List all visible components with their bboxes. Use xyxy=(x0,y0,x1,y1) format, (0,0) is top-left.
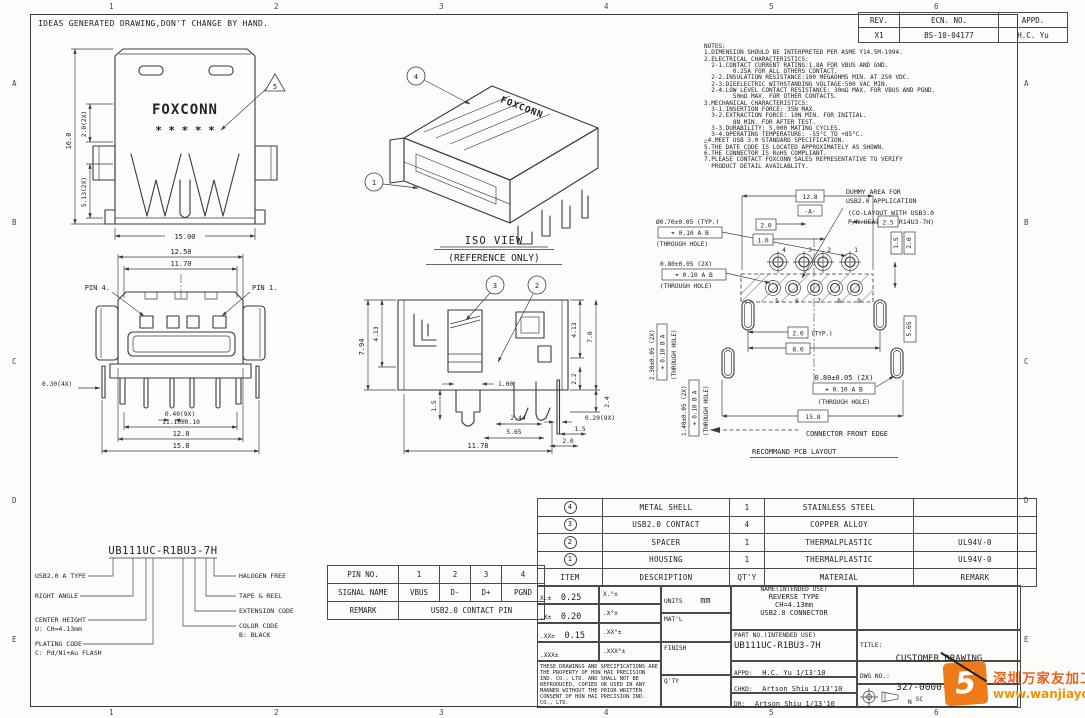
grid-row-label: A xyxy=(1024,79,1029,88)
tol-label: X.± xyxy=(540,595,551,602)
dim-label: 2.44 xyxy=(510,415,525,422)
balloon-1: 1 xyxy=(372,179,376,187)
notes-block: NOTES: 1.DIMENSION SHOULD BE INTERPRETED… xyxy=(704,44,935,170)
watermark-logo: 5 xyxy=(943,661,989,707)
pin1-label: PIN 1. xyxy=(252,284,277,292)
grid-col-label: 3 xyxy=(439,2,444,11)
appd-label: APPD: xyxy=(734,670,753,677)
bom-header-row: ITEM DESCRIPTION QT'Y MATERIAL REMARK xyxy=(538,569,1037,587)
grid-col-label: 5 xyxy=(769,2,774,11)
bom-row: 2 SPACER 1 THERMALPLASTIC UL94V-0 xyxy=(538,534,1037,552)
part-number: UB111UC-R1BU3-7H xyxy=(108,545,217,557)
ecn-value: BS-10-04177 xyxy=(900,28,999,43)
fcf-label: ⌖ 0.10 A B xyxy=(671,230,709,237)
tol-value: 0.15 xyxy=(565,631,585,641)
dim-label: 2.4 xyxy=(604,396,611,408)
pin-no-header: PIN NO. xyxy=(328,566,399,584)
hole-size-label: 0.80±0.05 (2X) xyxy=(660,261,712,268)
finish-label: FINISH xyxy=(661,642,731,675)
fcf-label: ⌖ 0.10 A B xyxy=(675,272,713,279)
pin4-label: PIN 4. xyxy=(85,284,110,292)
side-view-outline xyxy=(398,300,568,434)
pcb-pin-number: 7 xyxy=(817,298,821,305)
pcb-holes: 4 3 2 1 5 6 7 8 9 xyxy=(722,238,903,390)
pcb-layout: DUMMY AREA FOR USB2.0 APPLICATION (CO-LA… xyxy=(640,182,1024,464)
signal-name: D- xyxy=(440,584,471,602)
through-hole-label: (THROUGH HOLE) xyxy=(660,283,712,290)
tol-angle-label: .X°± xyxy=(599,604,661,623)
bom-material: STAINLESS STEEL xyxy=(765,499,914,517)
datum-a-label: -A- xyxy=(804,209,815,216)
code-label: HALOGEN FREE xyxy=(239,572,286,580)
dim-label: 0.40(9X) xyxy=(165,411,195,418)
dim-label: 1.5 xyxy=(893,237,900,249)
slot-callout-230: 2.30±0.05 (2X) ⌖ 0.10 B A (THROUGH HOLE) xyxy=(649,324,678,380)
pin-no: 3 xyxy=(471,566,502,584)
foxconn-logo: FOXCONN xyxy=(499,95,545,120)
grid-col-label: 3 xyxy=(439,708,444,717)
dummy-area-note: USB2.0 APPLICATION xyxy=(846,197,917,205)
pcb-layout-caption: RECOMMAND PCB LAYOUT xyxy=(752,448,837,456)
pin-assignment-table: PIN NO. 1 2 3 4 SIGNAL NAME VBUS D- D+ P… xyxy=(327,565,545,620)
bom-row: 3 USB2.0 CONTACT 4 COPPER ALLOY xyxy=(538,516,1037,534)
fcf-label: ⌖ 0.10 B A xyxy=(693,390,699,425)
breakdown-labels-right: HALOGEN FREE TAPE & REEL EXTENSION CODE … xyxy=(239,572,294,639)
grid-col-label: 5 xyxy=(769,708,774,717)
appd-value: H.C. Yu 1/13'10 xyxy=(762,669,825,677)
chkd-value: Artson Shiu 1/13'10 xyxy=(762,685,842,693)
watermark-logo-glyph: 5 xyxy=(954,665,977,701)
bom-header: ITEM xyxy=(538,569,603,587)
pcb-pin-number: 4 xyxy=(782,247,786,254)
tol-angle-label: X.°± xyxy=(599,585,661,604)
item-balloon: 2 xyxy=(564,536,577,549)
rev-value: X1 xyxy=(859,28,900,43)
signal-name-header: SIGNAL NAME xyxy=(328,584,399,602)
appd-header: APPD. xyxy=(999,13,1068,28)
bom-header: DESCRIPTION xyxy=(603,569,730,587)
grid-row-label: A xyxy=(12,79,17,88)
code-sublabel: C: Pd/Ni+Au FLASH xyxy=(35,649,102,657)
bom-material: THERMALPLASTIC xyxy=(765,534,914,552)
grid-row-label: B xyxy=(1024,218,1029,227)
dim-label: 1.5 xyxy=(431,400,438,412)
pin-no: 1 xyxy=(399,566,440,584)
grid-row-label: B xyxy=(12,218,17,227)
bom-header: REMARK xyxy=(914,569,1037,587)
dim-label: 7.94 xyxy=(358,339,366,356)
grid-row-label: C xyxy=(1024,357,1029,366)
name-line: USB2.0 CONNECTOR xyxy=(732,609,856,617)
top-view-dimensions: 16.0 2.0(2X) 5.13(2X) 15.00 5 xyxy=(65,49,285,241)
name-line: CH=4.13mm xyxy=(732,601,856,609)
tol-label: .XXX± xyxy=(540,652,559,659)
bom-material: COPPER ALLOY xyxy=(765,516,914,534)
dim-label: 11.78 xyxy=(467,442,488,450)
side-view: 3 2 7.94 4.13 1.5 xyxy=(328,262,652,468)
bom-row: 4 METAL SHELL 1 STAINLESS STEEL xyxy=(538,499,1037,517)
dim-label: 5.13(2X) xyxy=(81,177,88,207)
bom-description: METAL SHELL xyxy=(603,499,730,517)
grid-row-label: E xyxy=(12,635,17,644)
grid-col-label: 2 xyxy=(274,2,279,11)
breakdown-leaders xyxy=(80,558,236,644)
dim-label: 4.13 xyxy=(571,322,578,337)
tol-label: .X± xyxy=(540,614,551,621)
pcb-dimensions: 12.8 -A- 2.0 1.0 2.5 1.5 2.0 5.65 2.0 (T… xyxy=(710,190,916,458)
hole-callout-080: 0.80±0.05 (2X) ⌖ 0.10 A B (THROUGH HOLE) xyxy=(660,261,770,290)
dim-label: 1.00 xyxy=(498,381,513,388)
dim-label: 0.30(4X) xyxy=(42,381,72,388)
dim-label: 11.70 xyxy=(170,260,191,268)
grid-col-label: 2 xyxy=(274,708,279,717)
pcb-pin-number: 3 xyxy=(808,247,812,254)
bom-remark: UL94V-0 xyxy=(914,551,1037,569)
pcb-pin-number: 8 xyxy=(837,298,841,305)
dim-label: 0.20(9X) xyxy=(585,415,615,422)
name-line: REVERSE TYPE xyxy=(732,593,856,601)
note-line: PRODUCT DETAIL AVAILABLITY. xyxy=(704,164,935,170)
dim-label: 2.0 xyxy=(562,438,574,445)
bom-description: HOUSING xyxy=(603,551,730,569)
part-number-breakdown: UB111UC-R1BU3-7H USB2.0 A TYPE RIGHT ANG… xyxy=(33,540,333,672)
fcf-label: ⌖ 0.10 B A xyxy=(661,334,667,369)
dr-label: DR: xyxy=(734,701,745,708)
bom-header: MATERIAL xyxy=(765,569,914,587)
ecn-header: ECN. NO. xyxy=(900,13,999,28)
hole-size-label: Ø0.70±0.05 (TYP.) xyxy=(656,218,719,226)
side-view-balloons: 3 2 xyxy=(466,276,546,362)
rev-header: REV. xyxy=(859,13,900,28)
balloon-4: 4 xyxy=(414,73,418,81)
units-label: UNITS xyxy=(664,598,683,605)
dwg-no-label: DWG NO.: xyxy=(860,673,890,680)
grid-col-label: 6 xyxy=(934,708,939,717)
bom-row: 1 HOUSING 1 THERMALPLASTIC UL94V-0 xyxy=(538,551,1037,569)
remark-header: REMARK xyxy=(328,602,399,620)
grid-row-label: C xyxy=(12,357,17,366)
top-view: FOXCONN * * * * * 16.0 2.0(2X) 5.13(2X) … xyxy=(53,46,311,250)
iso-view-title: ISO VIEW xyxy=(465,235,524,247)
pcb-pin-number: 6 xyxy=(795,298,799,305)
sheet-label: N xyxy=(908,699,912,706)
revision-table: REV. ECN. NO. APPD. X1 BS-10-04177 H.C. … xyxy=(858,12,1068,43)
tol-value: 0.20 xyxy=(561,612,581,622)
grid-col-label: 1 xyxy=(109,2,114,11)
code-label: USB2.0 A TYPE xyxy=(35,572,86,580)
dim-label: 5.65 xyxy=(906,321,913,336)
dummy-area-note: DUMMY AREA FOR xyxy=(846,188,901,196)
tol-angle-label: .XXX°± xyxy=(599,642,661,661)
third-angle-projection-icon xyxy=(860,687,906,707)
iso-view: FOXCONN 4 1 ISO VIEW (REFERENCE ONLY) xyxy=(352,40,622,268)
dim-label: 2.2 xyxy=(571,373,578,385)
front-view-pin-labels: PIN 4. PIN 1. xyxy=(85,284,278,316)
watermark-site-url: www.wanjiayou.com xyxy=(993,687,1085,701)
pcb-pin-number: 5 xyxy=(775,298,779,305)
signal-name: D+ xyxy=(471,584,502,602)
through-hole-label: (THROUGH HOLE) xyxy=(703,385,710,436)
dim-label: 4.13 xyxy=(373,326,380,341)
dim-label: 2.0 xyxy=(792,331,804,338)
dim-label: 2.0 xyxy=(760,223,772,230)
hole-callout-070: Ø0.70±0.05 (TYP.) ⌖ 0.10 A B (THROUGH HO… xyxy=(656,218,846,256)
name-label: NAME(INTENDED USE) xyxy=(732,586,856,593)
dim-label: 15.8 xyxy=(173,442,190,450)
bom-material: THERMALPLASTIC xyxy=(765,551,914,569)
dim-label: 8.0 xyxy=(792,347,804,354)
title-label: TITLE: xyxy=(860,642,882,649)
remark-value: USB2.0 CONTACT PIN xyxy=(399,602,545,620)
watermark: 5 深圳万家友加工网 www.wanjiayou.com xyxy=(944,662,1085,705)
slot-callout-140: 1.40±0.05 (2X) ⌖ 0.10 B A (THROUGH HOLE) xyxy=(681,380,710,436)
qty-label: Q'TY xyxy=(661,675,731,708)
part-no-label: PART NO.(INTENDED USE) xyxy=(734,632,854,639)
pin-no: 2 xyxy=(440,566,471,584)
item-balloon: 3 xyxy=(564,518,577,531)
dim-label: 2.0 xyxy=(906,237,913,249)
dim-label: 12.50 xyxy=(170,248,191,256)
tol-label: .XX± xyxy=(540,633,555,640)
dim-label: 15.8 xyxy=(805,414,820,421)
bom-qty: 1 xyxy=(730,499,765,517)
grid-col-label: 4 xyxy=(604,708,609,717)
bom-qty: 1 xyxy=(730,551,765,569)
front-view-outline xyxy=(96,292,265,408)
dim-label: 5.65 xyxy=(506,429,521,436)
bom-qty: 4 xyxy=(730,516,765,534)
dim-label: 16.0 xyxy=(65,133,73,150)
bom-description: SPACER xyxy=(603,534,730,552)
part-no-value: UB111UC-R1BU3-7H xyxy=(734,641,854,651)
front-view-dimensions-bottom: 0.30(4X) 0.40(9X) 11.10±0.10 12.8 15.8 xyxy=(42,368,259,454)
dim-label: 2.5 xyxy=(882,220,894,227)
code-sublabel: U: CH=4.13mm xyxy=(35,625,82,633)
grid-col-label: 1 xyxy=(109,708,114,717)
mounting-slots xyxy=(722,300,903,378)
pcb-pin-number: 1 xyxy=(854,247,858,254)
header-note: IDEAS GENERATED DRAWING,DON'T CHANGE BY … xyxy=(38,19,268,28)
dim-label: 11.10±0.10 xyxy=(162,419,200,426)
front-view-dimensions-top: 12.50 11.70 xyxy=(118,248,243,298)
slot-size-label: 2.30±0.05 (2X) xyxy=(649,329,656,380)
dim-label: 1.0 xyxy=(757,238,769,245)
code-label: COLOR CODE xyxy=(239,622,278,630)
code-label: PLATING CODE xyxy=(35,640,82,648)
watermark-site-name: 深圳万家友加工网 xyxy=(993,667,1085,687)
code-label: CENTER HEIGHT xyxy=(35,616,86,624)
scale-label: SC xyxy=(916,696,923,703)
dim-label: 2.0(2X) xyxy=(81,111,88,138)
property-note: THESE DRAWINGS AND SPECIFICATIONS ARE TH… xyxy=(537,661,661,708)
dim-label: 12.8 xyxy=(173,430,190,438)
through-hole-label: (THROUGH HOLE) xyxy=(818,399,870,406)
dr-value: Artson Shiu 1/13'10 xyxy=(755,700,835,708)
slot-size-label: 1.40±0.05 (2X) xyxy=(681,385,688,436)
front-edge-label: CONNECTOR FRONT EDGE xyxy=(806,430,888,438)
grid-row-label: D xyxy=(12,496,17,505)
dim-label: 1.5 xyxy=(574,426,586,433)
bom-header: QT'Y xyxy=(730,569,765,587)
item-balloon: 1 xyxy=(564,553,577,566)
date-code-stars: * * * * * xyxy=(155,124,215,137)
front-view: 12.50 11.70 PI xyxy=(40,246,332,474)
bom-table: 4 METAL SHELL 1 STAINLESS STEEL 3 USB2.0… xyxy=(537,498,1037,587)
balloon-3: 3 xyxy=(493,282,497,290)
iso-view-outline xyxy=(390,86,598,244)
foxconn-logo: FOXCONN xyxy=(152,102,218,118)
iso-balloons: 4 1 xyxy=(365,67,470,191)
drawing-sheet: 1 2 3 4 5 6 1 2 3 4 5 6 A B C D E A B C … xyxy=(0,0,1085,718)
bom-remark xyxy=(914,499,1037,517)
dim-label: 15.00 xyxy=(174,233,195,241)
item-balloon: 4 xyxy=(564,501,577,514)
code-label: RIGHT ANGLE xyxy=(35,592,78,600)
pcb-pin-number: 2 xyxy=(827,247,831,254)
through-hole-label: (THROUGH HOLE) xyxy=(671,329,678,380)
tol-angle-label: .XX°± xyxy=(599,623,661,642)
bom-description: USB2.0 CONTACT xyxy=(603,516,730,534)
units-value: mm xyxy=(700,596,710,606)
bom-remark xyxy=(914,516,1037,534)
dim-label: 7.0 xyxy=(587,331,594,343)
tol-value: 0.25 xyxy=(561,593,581,603)
code-label: EXTENSION CODE xyxy=(239,607,294,615)
bom-remark: UL94V-0 xyxy=(914,534,1037,552)
bom-qty: 1 xyxy=(730,534,765,552)
flag-note-5: 5 xyxy=(273,83,277,91)
typ-label: (TYP.) xyxy=(811,331,833,338)
side-view-dimensions: 7.94 4.13 1.5 1.00 2.44 5.65 11.78 4.13 … xyxy=(358,300,615,454)
through-hole-label: (THROUGH HOLE) xyxy=(656,241,708,248)
code-sublabel: B: BLACK xyxy=(239,631,270,639)
balloon-2: 2 xyxy=(535,282,539,290)
fcf-label: ⌖ 0.10 A B xyxy=(825,387,863,394)
hole-size-label: 0.80±0.05 (2X) xyxy=(814,374,873,382)
grid-row-label: E xyxy=(1024,635,1029,644)
signal-name: VBUS xyxy=(399,584,440,602)
matl-label: MAT'L xyxy=(661,613,731,642)
dim-label: 12.8 xyxy=(802,194,817,201)
grid-col-label: 6 xyxy=(934,2,939,11)
appd-value: H.C. Yu xyxy=(999,28,1068,43)
code-label: TAPE & REEL xyxy=(239,592,282,600)
grid-col-label: 4 xyxy=(604,2,609,11)
pcb-pin-number: 9 xyxy=(857,298,861,305)
